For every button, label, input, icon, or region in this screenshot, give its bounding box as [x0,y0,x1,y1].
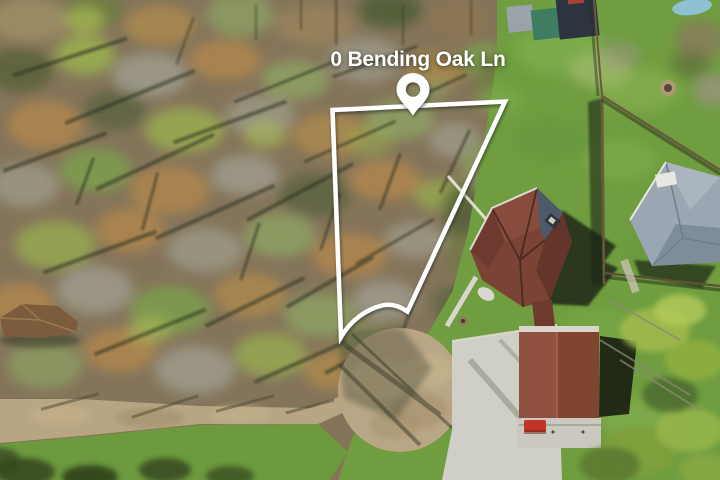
barn-gray-roof [506,4,535,33]
aerial-listing-photo: 0 Bending Oak Ln [0,0,720,480]
garage-eave [519,326,599,333]
fire-pit-center [461,319,465,323]
aerial-scene [0,0,720,480]
carport-post [582,431,585,434]
carport-post [552,431,555,434]
address-label: 0 Bending Oak Ln [330,48,505,72]
barn-tarp [531,8,562,41]
fire-pit-backyard-center [664,84,672,92]
vehicle-shadow [524,430,546,434]
garage-roof-lit [519,332,557,418]
